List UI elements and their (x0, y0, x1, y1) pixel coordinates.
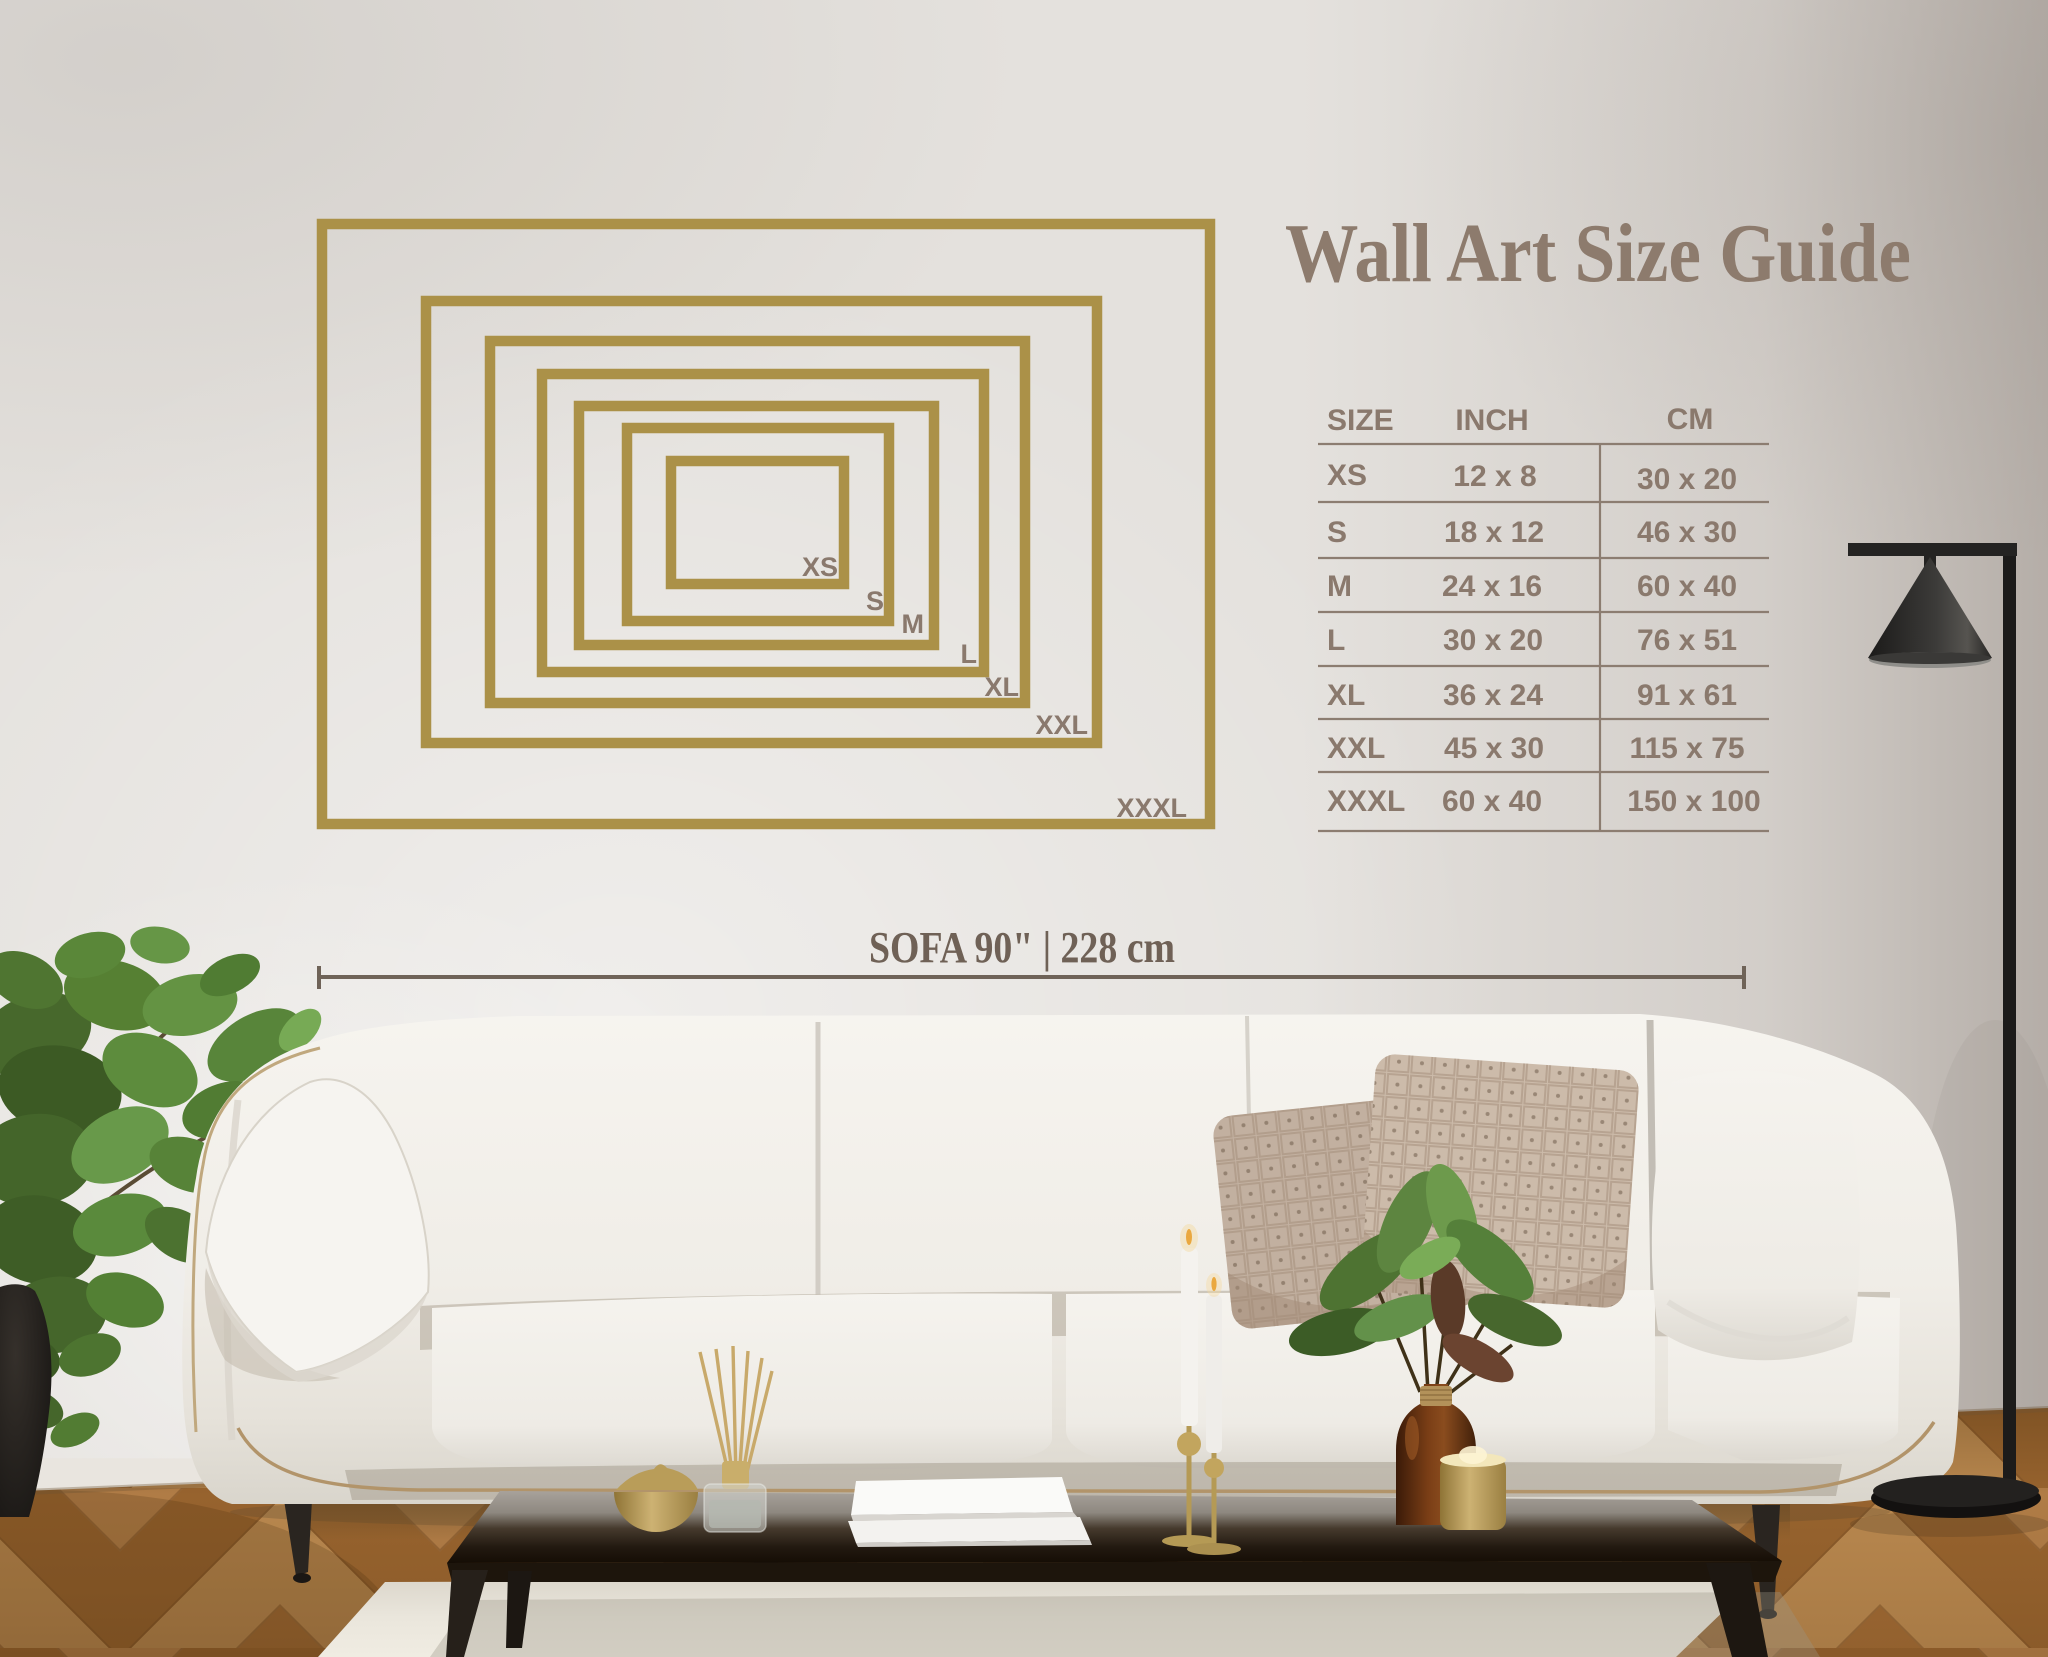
svg-text:L: L (961, 639, 978, 669)
svg-text:XS: XS (802, 552, 838, 582)
svg-text:XXXL: XXXL (1116, 793, 1187, 823)
svg-text:91 x 61: 91 x 61 (1637, 679, 1737, 712)
svg-text:L: L (1327, 624, 1345, 657)
svg-text:Wall Art Size Guide: Wall Art Size Guide (1285, 207, 1911, 300)
svg-text:XXXL: XXXL (1327, 785, 1405, 818)
svg-text:36 x 24: 36 x 24 (1443, 679, 1543, 712)
svg-text:XXL: XXL (1035, 710, 1088, 740)
svg-text:INCH: INCH (1455, 404, 1528, 437)
svg-text:24 x 16: 24 x 16 (1442, 570, 1542, 603)
svg-text:XS: XS (1327, 459, 1367, 492)
svg-text:115 x 75: 115 x 75 (1629, 732, 1744, 765)
svg-text:SIZE: SIZE (1327, 404, 1394, 437)
svg-text:30 x 20: 30 x 20 (1443, 624, 1543, 657)
svg-text:45 x 30: 45 x 30 (1444, 732, 1544, 765)
svg-text:S: S (866, 586, 884, 616)
svg-text:60 x 40: 60 x 40 (1637, 570, 1737, 603)
svg-text:XL: XL (1327, 679, 1365, 712)
svg-text:60 x 40: 60 x 40 (1442, 785, 1542, 818)
svg-text:150 x 100: 150 x 100 (1627, 785, 1760, 818)
svg-text:M: M (902, 609, 925, 639)
svg-text:30 x 20: 30 x 20 (1637, 463, 1737, 496)
svg-text:XL: XL (984, 672, 1019, 702)
svg-text:M: M (1327, 570, 1352, 603)
svg-text:18 x 12: 18 x 12 (1444, 516, 1544, 549)
svg-text:CM: CM (1667, 403, 1714, 436)
svg-text:12 x 8: 12 x 8 (1453, 460, 1536, 493)
svg-text:76 x 51: 76 x 51 (1637, 624, 1737, 657)
svg-text:XXL: XXL (1327, 732, 1385, 765)
svg-text:S: S (1327, 516, 1347, 549)
svg-text:46 x 30: 46 x 30 (1637, 516, 1737, 549)
svg-text:SOFA 90" | 228 cm: SOFA 90" | 228 cm (869, 923, 1175, 972)
